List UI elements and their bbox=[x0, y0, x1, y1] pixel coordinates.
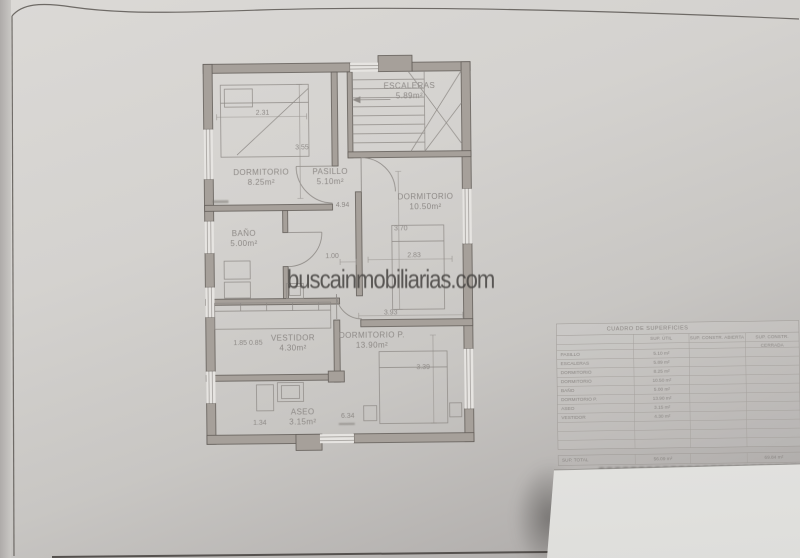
paper-corner-edge bbox=[0, 0, 800, 558]
photographed-floor-plan: DORMITORIO 8.25m² PASILLO 5.10m² ESCALER… bbox=[0, 0, 800, 558]
